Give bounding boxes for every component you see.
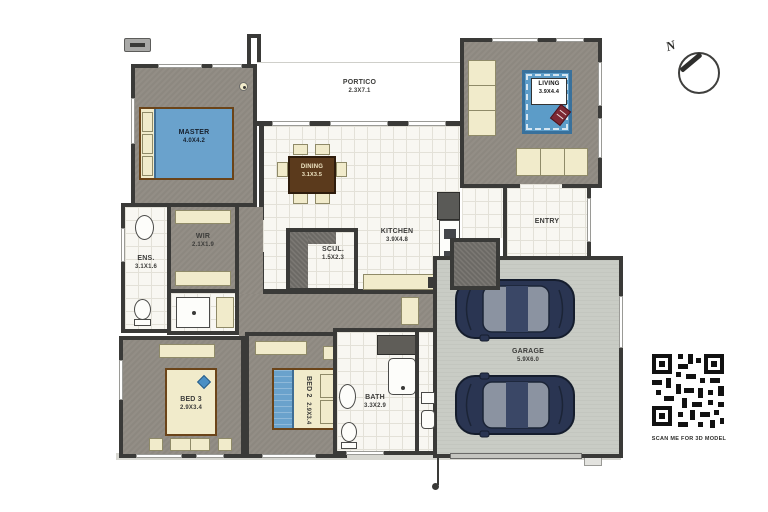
room-shower (167, 289, 239, 335)
room-dims: 3.1X1.6 (125, 264, 167, 272)
room-living: LIVING 3.9X4.4 (460, 38, 602, 188)
bed-pillow (142, 134, 153, 154)
bed-footboard (170, 438, 210, 451)
letterbox-icon (124, 38, 151, 52)
dining-label: DINING 3.1X3.5 (290, 164, 334, 178)
dining-chair (336, 162, 347, 177)
room-scullery: SCUL. 1.5X2.3 (286, 228, 358, 292)
room-wir: WIR 2.1X1.9 (167, 203, 239, 293)
compass: N (664, 36, 730, 102)
entry-tile (462, 188, 503, 238)
room-dims: 2.9X3.4 (305, 402, 311, 424)
hallway (239, 207, 263, 294)
window (598, 62, 602, 106)
room-pantry (450, 238, 500, 290)
bed-pillow (320, 400, 334, 424)
room-dims: 4.0X4.2 (156, 138, 232, 146)
room-name: PORTICO (257, 79, 462, 88)
wc-sink (421, 392, 435, 404)
garage-label: GARAGE 5.9X6.0 (437, 348, 619, 364)
master-label: MASTER 4.0X4.2 (156, 129, 232, 145)
living-label-box: LIVING 3.9X4.4 (531, 78, 567, 105)
room-name: BED 2 (305, 376, 312, 398)
room-dims: 3.1X3.5 (290, 172, 334, 179)
window (131, 98, 135, 144)
kitchen-label: KITCHEN 3.9X4.8 (367, 228, 427, 244)
window (346, 451, 384, 455)
dining-table: DINING 3.1X3.5 (288, 156, 336, 194)
room-name: SCUL. (312, 246, 354, 255)
room-bed3: BED 3 2.9X3.4 (119, 336, 245, 458)
window (212, 64, 242, 68)
toilet (341, 422, 357, 442)
bed2-cover (274, 370, 294, 428)
room-dims: 3.3X2.9 (351, 403, 399, 411)
vanity (216, 297, 234, 328)
window (136, 454, 182, 458)
window (587, 198, 591, 242)
room-dims: 2.9X3.4 (167, 405, 215, 413)
window (619, 296, 623, 348)
room-portico: PORTICO 2.3X7.1 (257, 62, 462, 126)
wall (259, 126, 264, 220)
room-name: WIR (171, 233, 235, 242)
scullery-counter (308, 232, 336, 244)
window (121, 228, 125, 262)
wardrobe-shelf (175, 271, 231, 286)
window (598, 118, 602, 158)
scullery-counter (290, 232, 308, 288)
car (453, 372, 577, 438)
downpipe (437, 458, 439, 485)
wardrobe-shelf (175, 210, 231, 224)
sofa (468, 60, 496, 136)
room-dims: 5.9X6.0 (437, 357, 619, 365)
nightstand (149, 438, 163, 451)
room-entry: ENTRY (503, 184, 591, 260)
bath-storage (377, 335, 419, 355)
wir-label: WIR 2.1X1.9 (171, 233, 235, 249)
ceiling-light (239, 82, 248, 91)
bath-label: BATH 3.3X2.9 (351, 394, 399, 410)
room-dims: 2.1X1.9 (171, 242, 235, 250)
bathroom-sink (135, 215, 154, 240)
window (196, 454, 224, 458)
toilet-tank (134, 319, 151, 326)
downpipe-end (432, 483, 439, 490)
portico-label: PORTICO 2.3X7.1 (257, 79, 462, 95)
room-dims: 3.9X4.8 (367, 237, 427, 245)
garage-door (450, 453, 582, 459)
ensuite-label: ENS. 3.1X1.6 (125, 255, 167, 271)
entry-label: ENTRY (507, 218, 587, 227)
room-name: GARAGE (437, 348, 619, 357)
wall (415, 332, 419, 451)
bed2-bed: BED 2 2.9X3.4 (272, 368, 340, 430)
sofa (516, 148, 588, 176)
room-name: LIVING (532, 81, 566, 89)
floor-plan: PORTICO 2.3X7.1 DINING 3.1X3.5 KITCHEN 3… (0, 0, 768, 512)
laundry-counter (401, 297, 419, 325)
qr-caption: SCAN ME FOR 3D MODEL (648, 436, 730, 443)
master-bed: MASTER 4.0X4.2 (139, 107, 234, 180)
nightstand (218, 438, 232, 451)
window (119, 360, 123, 400)
bed-pillow (142, 156, 153, 176)
room-name: DINING (290, 164, 334, 172)
entry-opening (520, 184, 562, 188)
bathtub (388, 358, 416, 395)
room-bed2: BED 2 2.9X3.4 (245, 332, 347, 458)
room-name: BATH (351, 394, 399, 403)
room-name: BED 3 (167, 396, 215, 405)
bed-pillow (320, 374, 334, 398)
room-name: KITCHEN (367, 228, 427, 237)
compass-n-label: N (664, 37, 678, 55)
room-dims: 1.5X2.3 (312, 255, 354, 263)
bed-pillow (142, 112, 153, 132)
dining-chair (293, 193, 308, 204)
dining-chair (315, 144, 330, 155)
coffee-table (550, 104, 571, 126)
master-bed-cover: MASTER 4.0X4.2 (154, 109, 232, 178)
pillow-diamond (197, 375, 211, 389)
living-rug: LIVING 3.9X4.4 (522, 70, 572, 134)
room-dims: 3.9X4.4 (532, 89, 566, 96)
kitchen-appliance (437, 192, 460, 220)
qr-code (648, 348, 728, 432)
room-name: ENTRY (507, 218, 587, 227)
bed3-label: BED 3 2.9X3.4 (167, 396, 215, 412)
wc-toilet (421, 410, 435, 429)
room-name: ENS. (125, 255, 167, 264)
toilet-tank (341, 442, 357, 449)
bed2-label: BED 2 2.9X3.4 (298, 376, 318, 422)
dining-chair (293, 144, 308, 155)
bed3-bed: BED 3 2.9X3.4 (165, 368, 217, 436)
toilet (134, 299, 151, 320)
room-ensuite: ENS. 3.1X1.6 (121, 203, 171, 333)
living-label: LIVING 3.9X4.4 (532, 81, 566, 95)
window (492, 38, 538, 42)
qr-block: SCAN ME FOR 3D MODEL (648, 348, 730, 450)
scullery-label: SCUL. 1.5X2.3 (312, 246, 354, 262)
dining-chair (277, 162, 288, 177)
shower (176, 297, 210, 328)
window (556, 38, 584, 42)
wardrobe-shelf (159, 344, 215, 358)
window (262, 454, 316, 458)
room-bath: BATH 3.3X2.9 (333, 328, 437, 455)
room-dims: 2.3X7.1 (257, 88, 462, 96)
garage-step (584, 457, 602, 466)
window (158, 64, 202, 68)
dining-chair (315, 193, 330, 204)
room-name: MASTER (156, 129, 232, 138)
wardrobe-shelf (255, 341, 307, 355)
